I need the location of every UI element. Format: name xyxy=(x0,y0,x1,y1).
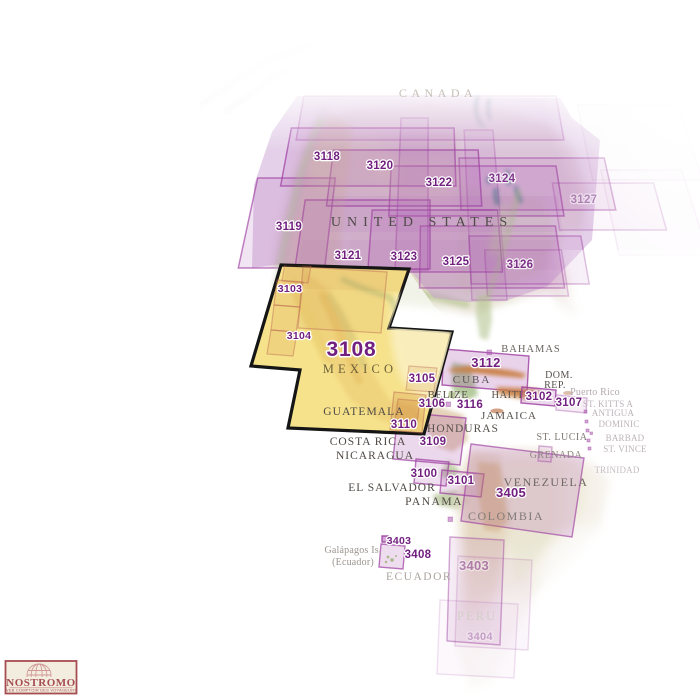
svg-text:3125: 3125 xyxy=(443,256,470,268)
svg-text:HONDURAS: HONDURAS xyxy=(427,423,499,435)
svg-text:3119: 3119 xyxy=(276,221,302,233)
svg-text:3127: 3127 xyxy=(571,194,598,206)
svg-text:ECUADOR: ECUADOR xyxy=(386,571,452,583)
svg-text:REP.: REP. xyxy=(544,380,566,391)
svg-text:CUBA: CUBA xyxy=(453,374,492,386)
svg-text:GRENADA: GRENADA xyxy=(530,450,583,461)
svg-text:3101: 3101 xyxy=(448,475,475,487)
svg-text:3120: 3120 xyxy=(367,160,394,172)
svg-text:BARBAD: BARBAD xyxy=(606,433,645,443)
svg-text:3403: 3403 xyxy=(459,558,489,573)
svg-text:3108: 3108 xyxy=(327,338,377,361)
svg-text:BAHAMAS: BAHAMAS xyxy=(501,344,561,355)
svg-text:3124: 3124 xyxy=(489,173,516,185)
svg-text:EL SALVADOR: EL SALVADOR xyxy=(348,482,436,494)
svg-text:ST. LUCIA: ST. LUCIA xyxy=(537,432,588,443)
svg-text:3100: 3100 xyxy=(411,468,438,480)
svg-text:3102: 3102 xyxy=(526,391,553,403)
svg-text:3105: 3105 xyxy=(409,373,436,385)
svg-text:ST. VINCE: ST. VINCE xyxy=(603,444,647,454)
svg-text:ANTIGUA: ANTIGUA xyxy=(592,408,635,418)
svg-text:TRINIDAD: TRINIDAD xyxy=(594,465,639,475)
svg-text:3403: 3403 xyxy=(387,535,412,547)
svg-text:COSTA RICA: COSTA RICA xyxy=(330,436,407,448)
svg-text:UNITED STATES: UNITED STATES xyxy=(331,215,513,230)
svg-text:3106: 3106 xyxy=(419,398,446,410)
svg-text:3123: 3123 xyxy=(391,251,418,263)
svg-text:3404: 3404 xyxy=(467,631,493,643)
svg-text:PERU: PERU xyxy=(457,609,497,623)
svg-text:JAMAICA: JAMAICA xyxy=(481,410,537,422)
svg-text:COLOMBIA: COLOMBIA xyxy=(468,509,544,523)
svg-text:3110: 3110 xyxy=(391,419,417,431)
svg-text:GUATEMALA: GUATEMALA xyxy=(323,406,404,418)
svg-text:Puerto Rico: Puerto Rico xyxy=(570,387,620,398)
svg-text:HAITI: HAITI xyxy=(491,390,522,401)
svg-text:CANADA: CANADA xyxy=(399,86,477,100)
svg-text:DOMINIC: DOMINIC xyxy=(599,419,640,429)
svg-text:3107: 3107 xyxy=(556,397,583,409)
svg-text:(Ecuador): (Ecuador) xyxy=(332,557,374,568)
svg-text:3121: 3121 xyxy=(335,250,362,262)
svg-text:3408: 3408 xyxy=(405,549,432,561)
svg-text:3122: 3122 xyxy=(426,177,453,189)
svg-text:3112: 3112 xyxy=(471,355,500,370)
svg-text:3116: 3116 xyxy=(457,399,483,411)
svg-text:3109: 3109 xyxy=(420,436,447,448)
svg-text:3405: 3405 xyxy=(496,485,526,500)
svg-text:WEB COMPTOIR DES VOYAGEURS: WEB COMPTOIR DES VOYAGEURS xyxy=(5,688,78,693)
svg-text:3126: 3126 xyxy=(507,259,534,271)
svg-text:Galápagos Is.: Galápagos Is. xyxy=(324,545,381,556)
svg-text:NICARAGUA: NICARAGUA xyxy=(336,450,414,462)
svg-text:PANAMA: PANAMA xyxy=(405,496,463,508)
svg-text:MEXICO: MEXICO xyxy=(323,362,398,376)
svg-text:3118: 3118 xyxy=(314,151,340,163)
svg-text:3103: 3103 xyxy=(278,283,303,295)
svg-text:3104: 3104 xyxy=(287,330,312,342)
